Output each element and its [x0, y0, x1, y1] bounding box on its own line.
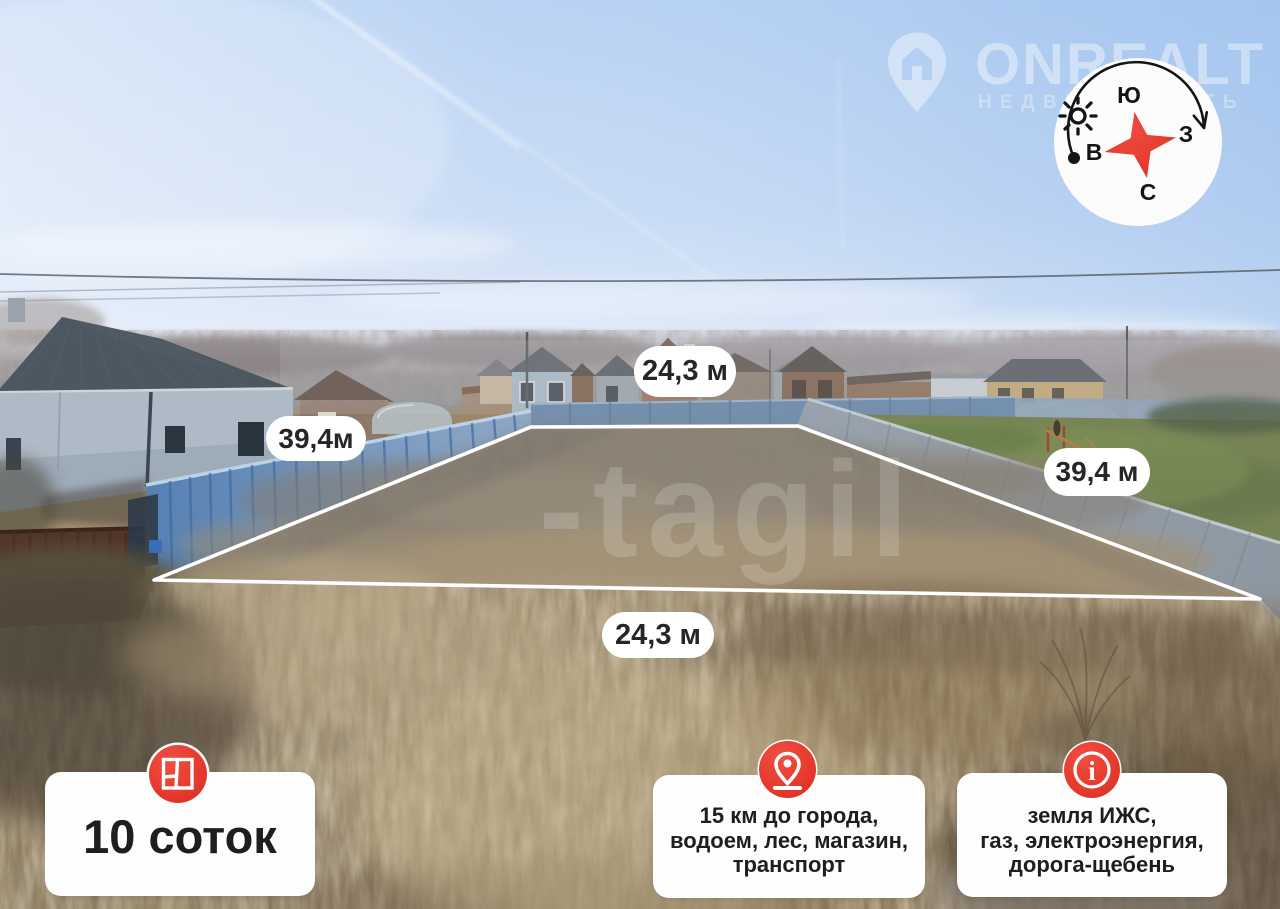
svg-text:i: i	[1088, 756, 1096, 786]
svg-text:-tagil: -tagil	[539, 433, 918, 585]
svg-text:З: З	[1179, 121, 1193, 147]
svg-text:С: С	[1140, 179, 1157, 205]
svg-text:В: В	[1086, 139, 1103, 165]
svg-text:Ю: Ю	[1117, 82, 1141, 108]
